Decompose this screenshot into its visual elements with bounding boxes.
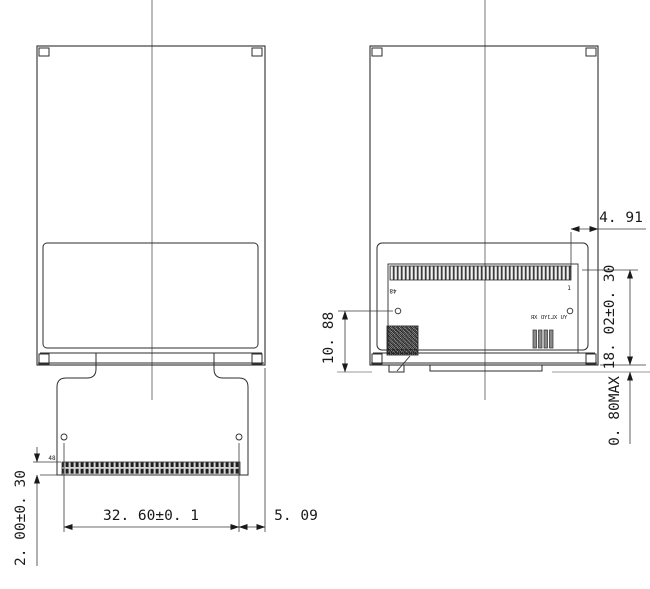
back-connector-contacts: [390, 266, 571, 280]
vent-bar: [544, 330, 548, 348]
back-pin-label-left: 48: [389, 287, 397, 294]
dim-text-pin-to-edge: 4. 91: [599, 210, 643, 226]
mechanical-drawing-page: 48 32. 60±0. 1 5. 09 2. 00±0. 30: [0, 0, 650, 589]
front-hole-left: [61, 434, 67, 440]
dim-text-right-offset: 5. 09: [274, 508, 318, 524]
vent-bar: [550, 330, 554, 348]
back-silkscreen-marking: YU XLJYD XR: [530, 315, 567, 321]
vent-bar: [539, 330, 543, 348]
dim-text-pcb-height: 18. 02±0. 30: [602, 265, 618, 370]
back-view: 48 1 YU XLJYD XR: [370, 0, 598, 400]
back-hole-left: [395, 308, 401, 314]
front-fpc-outline: [57, 353, 248, 475]
front-top-right-notch: [252, 48, 262, 56]
back-crosshatch-pad: [387, 326, 418, 355]
back-hole-right: [567, 308, 573, 314]
dim-text-protrusion: 0. 80MAX: [607, 376, 623, 446]
front-top-left-notch: [39, 48, 49, 56]
dim-text-hole-to-bottom: 10. 88: [321, 312, 337, 364]
front-hole-right: [236, 434, 242, 440]
back-pin-label-right: 1: [567, 285, 571, 292]
back-top-left-notch: [372, 48, 382, 56]
front-view: 48: [37, 0, 265, 475]
front-connector-contacts: [62, 462, 240, 475]
dim-text-fpc-thickness: 2. 00±0. 30: [13, 470, 29, 566]
lcd-module-drawing: 48 32. 60±0. 1 5. 09 2. 00±0. 30: [0, 0, 650, 589]
back-vent-bars: [533, 330, 553, 348]
dim-text-connector-width: 32. 60±0. 1: [103, 508, 199, 524]
vent-bar: [533, 330, 537, 348]
front-pin-label: 48: [48, 455, 56, 462]
back-bottom-tab-wide: [430, 365, 542, 371]
front-display-window: [43, 243, 258, 348]
front-outline: [37, 46, 265, 365]
back-top-right-notch: [586, 48, 596, 56]
